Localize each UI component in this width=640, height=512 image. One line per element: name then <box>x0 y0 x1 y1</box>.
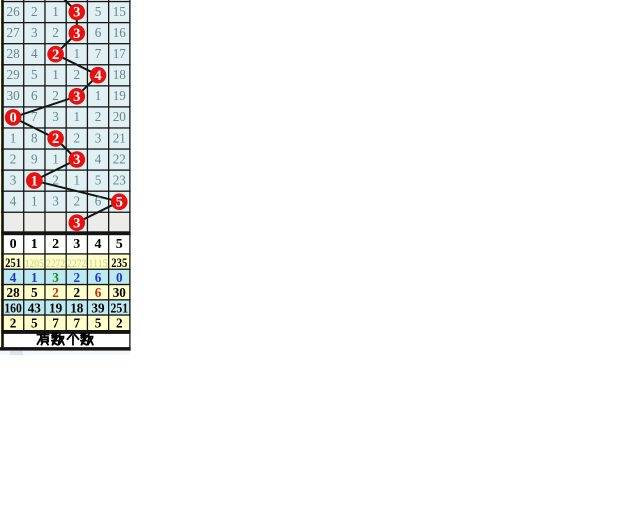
svg-text:1: 1 <box>31 237 38 252</box>
svg-text:5: 5 <box>116 194 123 210</box>
svg-text:1: 1 <box>52 4 59 19</box>
svg-text:1: 1 <box>74 172 81 187</box>
svg-text:3: 3 <box>73 152 80 168</box>
svg-text:19: 19 <box>49 300 63 315</box>
svg-text:28: 28 <box>7 46 21 61</box>
svg-text:3: 3 <box>52 109 59 124</box>
svg-text:5: 5 <box>95 315 102 330</box>
svg-text:6: 6 <box>31 88 38 103</box>
svg-text:5: 5 <box>31 315 38 330</box>
svg-text:2: 2 <box>10 151 17 166</box>
svg-text:235: 235 <box>111 256 127 270</box>
svg-text:28: 28 <box>7 285 21 300</box>
svg-text:7: 7 <box>31 109 38 124</box>
svg-text:1: 1 <box>10 130 17 145</box>
svg-text:3: 3 <box>52 270 59 285</box>
svg-text:7: 7 <box>52 315 59 330</box>
svg-text:2: 2 <box>116 315 123 330</box>
svg-text:22: 22 <box>113 151 126 166</box>
svg-text:6: 6 <box>95 270 102 285</box>
svg-text:2: 2 <box>52 285 59 300</box>
svg-text:6: 6 <box>95 194 102 209</box>
svg-text:20: 20 <box>113 109 127 124</box>
svg-text:23: 23 <box>113 172 127 187</box>
svg-text:4: 4 <box>10 270 17 285</box>
svg-text:2: 2 <box>52 88 59 103</box>
svg-text:3: 3 <box>73 237 80 252</box>
svg-text:7: 7 <box>95 46 102 61</box>
svg-text:2: 2 <box>52 47 59 63</box>
svg-text:3: 3 <box>52 194 59 209</box>
svg-text:1: 1 <box>95 88 102 103</box>
svg-text:2: 2 <box>31 4 38 19</box>
svg-text:18: 18 <box>113 67 127 82</box>
svg-text:18: 18 <box>70 300 84 315</box>
svg-text:4: 4 <box>95 151 102 166</box>
svg-text:8: 8 <box>31 130 38 145</box>
svg-text:160: 160 <box>4 300 22 315</box>
svg-text:3: 3 <box>73 89 80 105</box>
svg-text:43: 43 <box>28 300 42 315</box>
svg-text:26: 26 <box>7 4 21 19</box>
svg-text:1: 1 <box>31 270 38 285</box>
svg-text:3: 3 <box>31 25 38 40</box>
svg-text:30: 30 <box>7 88 21 103</box>
svg-text:1: 1 <box>74 109 81 124</box>
svg-text:30: 30 <box>113 285 127 300</box>
svg-text:2: 2 <box>10 315 17 330</box>
svg-text:2: 2 <box>74 67 81 82</box>
svg-text:2: 2 <box>74 194 81 209</box>
svg-text:16: 16 <box>113 25 127 40</box>
svg-text:3: 3 <box>73 5 80 21</box>
svg-text:2272: 2272 <box>67 256 86 270</box>
svg-text:21: 21 <box>113 130 126 145</box>
svg-text:2: 2 <box>52 25 59 40</box>
svg-text:6: 6 <box>95 285 102 300</box>
svg-text:29: 29 <box>7 67 21 82</box>
svg-text:27: 27 <box>7 25 21 40</box>
svg-text:4: 4 <box>10 194 17 209</box>
svg-text:2: 2 <box>74 130 81 145</box>
svg-text:0: 0 <box>116 270 123 285</box>
svg-text:19: 19 <box>113 88 127 103</box>
svg-text:1: 1 <box>31 173 38 189</box>
svg-text:6: 6 <box>95 25 102 40</box>
svg-text:5: 5 <box>95 4 102 19</box>
svg-text:251: 251 <box>5 256 21 270</box>
svg-text:1115: 1115 <box>89 256 108 270</box>
svg-text:7: 7 <box>74 315 81 330</box>
svg-text:0: 0 <box>9 110 16 126</box>
svg-text:9: 9 <box>31 151 38 166</box>
svg-text:1: 1 <box>52 151 59 166</box>
svg-text:2272: 2272 <box>46 256 65 270</box>
svg-text:2: 2 <box>52 172 59 187</box>
svg-text:2: 2 <box>52 237 59 252</box>
svg-text:4: 4 <box>31 46 38 61</box>
svg-text:2: 2 <box>74 285 81 300</box>
svg-text:1: 1 <box>52 67 59 82</box>
svg-text:17: 17 <box>113 46 127 61</box>
svg-text:1205: 1205 <box>25 256 44 270</box>
svg-text:2: 2 <box>95 109 102 124</box>
svg-text:3: 3 <box>95 130 102 145</box>
svg-text:5: 5 <box>95 172 102 187</box>
svg-text:4: 4 <box>94 68 102 84</box>
svg-text:0: 0 <box>10 237 17 252</box>
svg-text:15: 15 <box>113 4 127 19</box>
svg-text:3: 3 <box>10 172 17 187</box>
svg-text:2: 2 <box>52 131 59 147</box>
svg-text:4: 4 <box>95 237 102 252</box>
svg-text:1: 1 <box>31 194 38 209</box>
svg-text:39: 39 <box>91 300 105 315</box>
svg-text:5: 5 <box>116 237 123 252</box>
svg-text:251: 251 <box>111 300 129 315</box>
svg-text:1: 1 <box>74 46 81 61</box>
svg-text:2: 2 <box>74 270 81 285</box>
svg-text:3: 3 <box>73 26 80 42</box>
svg-text:5: 5 <box>31 67 38 82</box>
svg-text:3: 3 <box>73 215 80 231</box>
svg-text:5: 5 <box>31 285 38 300</box>
